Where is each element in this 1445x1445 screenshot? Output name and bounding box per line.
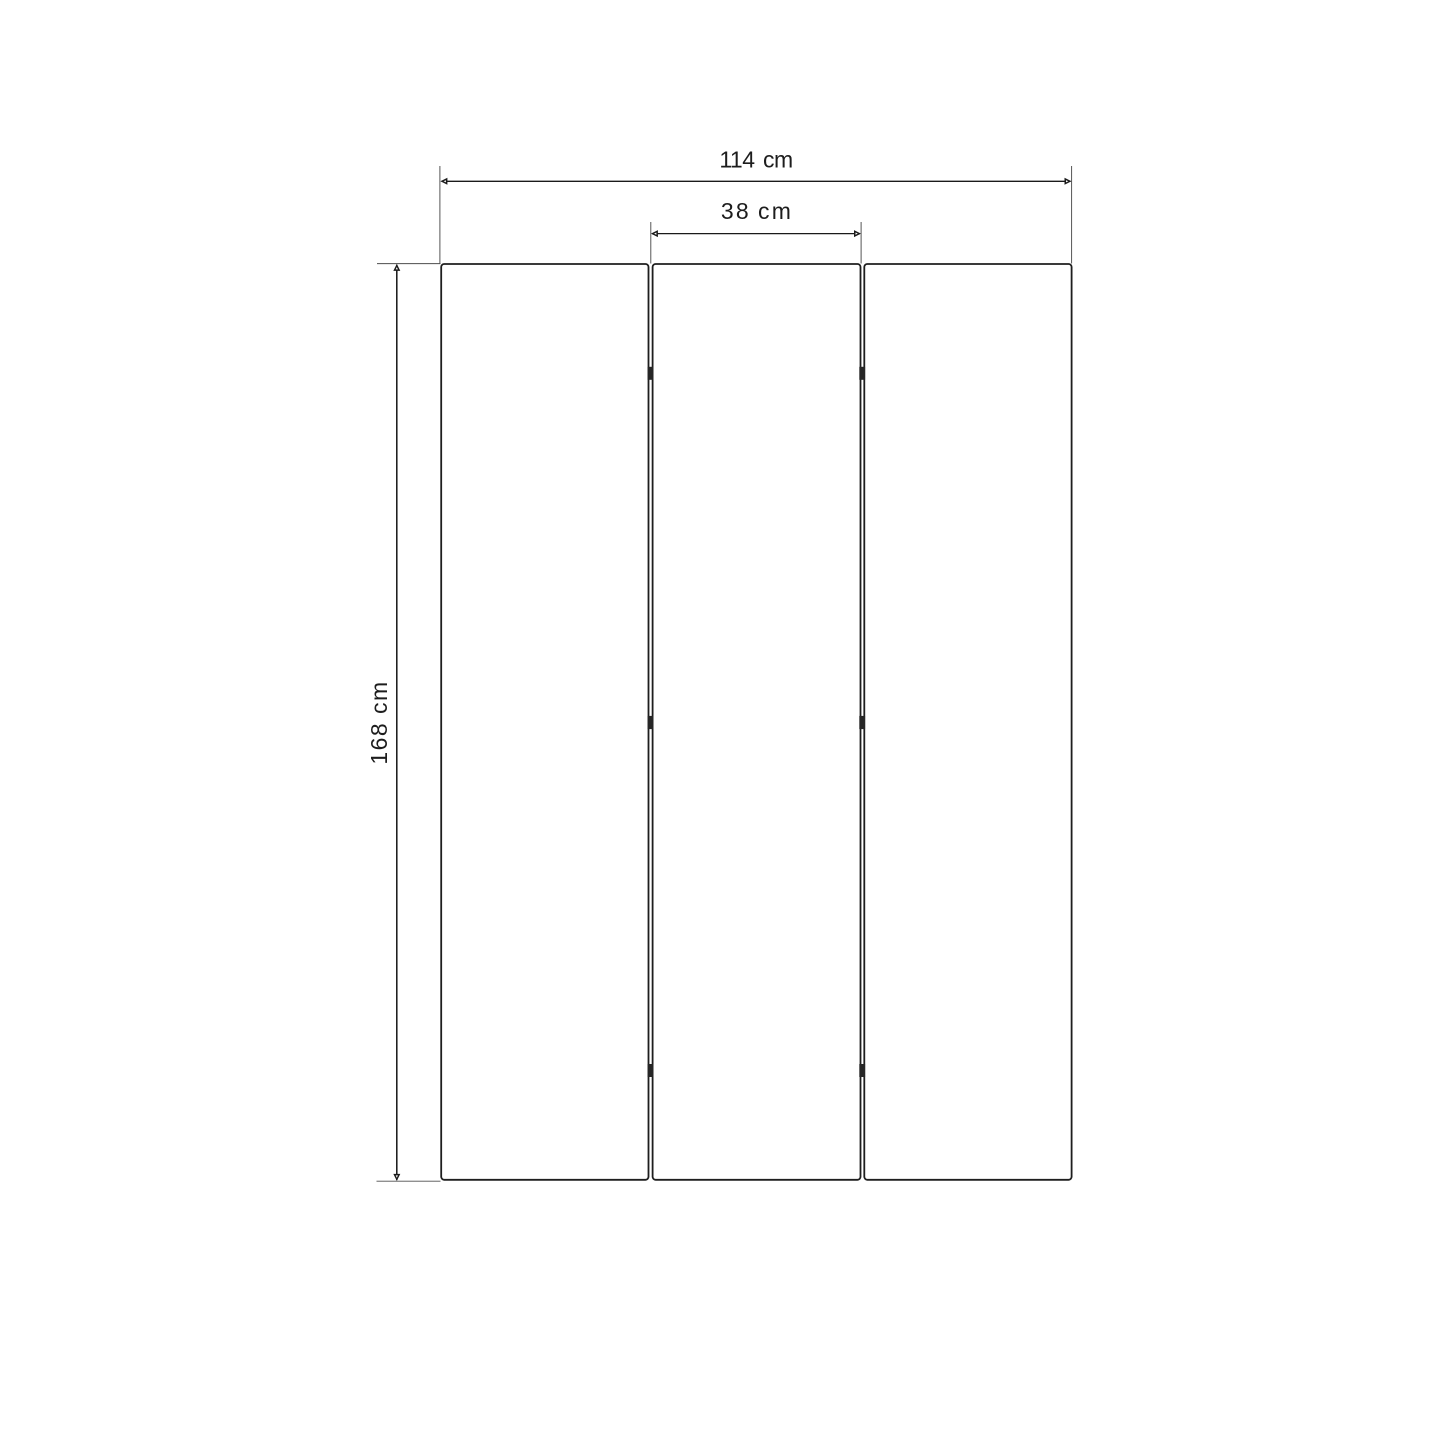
svg-text:114 cm: 114 cm [719, 147, 792, 173]
svg-text:38 cm: 38 cm [721, 198, 793, 224]
svg-text:168 cm: 168 cm [366, 680, 392, 764]
